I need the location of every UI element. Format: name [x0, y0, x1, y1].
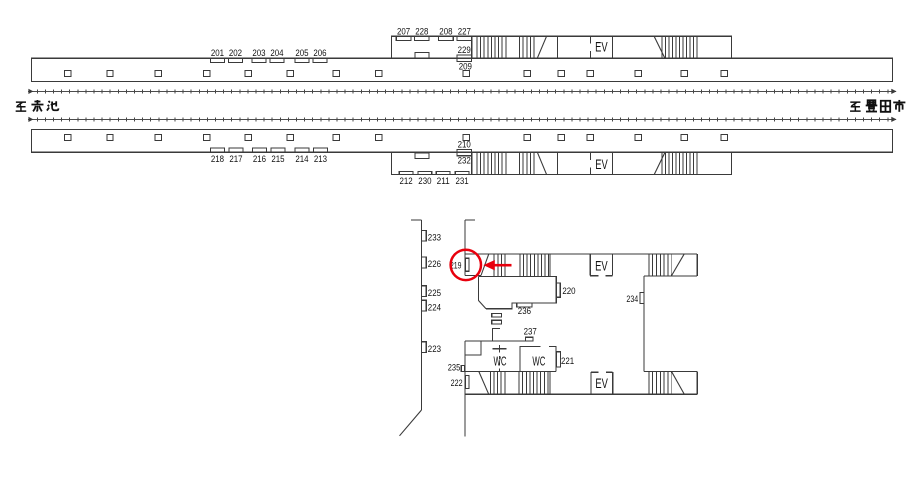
svg-text:201: 201: [211, 48, 224, 58]
svg-text:211: 211: [437, 176, 450, 186]
svg-text:210: 210: [458, 139, 471, 149]
svg-text:204: 204: [270, 48, 283, 58]
svg-text:233: 233: [428, 232, 441, 242]
svg-text:217: 217: [229, 154, 242, 164]
svg-text:EV: EV: [595, 157, 608, 172]
svg-text:226: 226: [428, 259, 441, 269]
svg-text:221: 221: [561, 356, 574, 366]
svg-text:237: 237: [524, 327, 537, 337]
svg-text:216: 216: [253, 154, 266, 164]
svg-text:231: 231: [456, 176, 469, 186]
svg-text:235: 235: [448, 363, 461, 373]
svg-text:234: 234: [626, 294, 638, 304]
svg-text:236: 236: [518, 306, 531, 316]
svg-text:WC: WC: [532, 353, 545, 368]
svg-text:WC: WC: [494, 353, 507, 368]
svg-text:229: 229: [458, 45, 471, 55]
svg-text:206: 206: [313, 48, 326, 58]
svg-text:203: 203: [252, 48, 265, 58]
svg-text:209: 209: [459, 61, 472, 71]
svg-text:214: 214: [295, 154, 308, 164]
svg-text:212: 212: [400, 176, 413, 186]
svg-text:222: 222: [451, 378, 463, 388]
svg-text:202: 202: [229, 48, 242, 58]
svg-text:228: 228: [415, 26, 428, 36]
svg-text:EV: EV: [595, 259, 608, 274]
svg-text:220: 220: [562, 286, 575, 296]
svg-text:213: 213: [314, 154, 327, 164]
svg-text:227: 227: [458, 26, 471, 36]
svg-text:218: 218: [211, 154, 224, 164]
svg-text:EV: EV: [595, 376, 608, 391]
svg-text:215: 215: [271, 154, 284, 164]
svg-text:232: 232: [458, 155, 471, 165]
svg-text:225: 225: [428, 288, 441, 298]
svg-text:EV: EV: [595, 39, 608, 54]
svg-text:230: 230: [418, 176, 431, 186]
svg-text:207: 207: [397, 26, 410, 36]
svg-text:224: 224: [428, 302, 441, 312]
svg-text:223: 223: [428, 344, 441, 354]
svg-text:205: 205: [295, 48, 308, 58]
svg-text:208: 208: [439, 26, 452, 36]
